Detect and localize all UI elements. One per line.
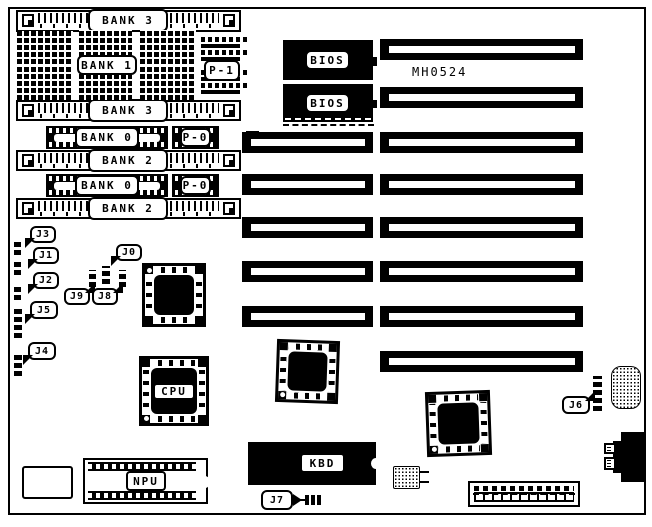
- dram-chip-block: [17, 31, 73, 64]
- jumper-j7-pins: [305, 495, 321, 505]
- expansion-slot-short-1: [242, 132, 373, 153]
- dram-chip-block: [140, 30, 196, 64]
- pin-strip: [88, 491, 196, 500]
- pin-corner: [145, 316, 153, 324]
- chip-row: [201, 44, 240, 48]
- crystal-oscillator: [393, 466, 420, 489]
- pin-strip: [88, 462, 196, 471]
- bank3-label: BANK 3: [88, 99, 168, 122]
- pin-ticks: [151, 416, 197, 422]
- cpu-label: CPU: [153, 383, 195, 400]
- plcc-chip-3: [425, 390, 492, 457]
- socket-slot: [136, 182, 160, 190]
- expansion-slot-long-8: [380, 351, 583, 372]
- simm-latch-icon: [223, 154, 235, 167]
- plcc-chip-2: [275, 339, 340, 404]
- keyboard-din-connector: [621, 472, 645, 482]
- slot-opening: [389, 313, 575, 320]
- slot-opening: [251, 313, 365, 320]
- power-pins-bottom: [474, 492, 574, 502]
- slot-opening: [389, 94, 575, 101]
- power-connector: [468, 481, 580, 507]
- pin-ticks: [429, 404, 436, 445]
- kbd-label: KBD: [300, 453, 345, 473]
- slot-opening: [389, 358, 575, 365]
- connector-texture: [607, 446, 611, 451]
- bios-label: BIOS: [305, 93, 350, 113]
- din-pin-connector: [604, 443, 616, 454]
- expansion-slot-short-2: [242, 174, 373, 195]
- motherboard-diagram: BANK 3 BANK 3 BANK 2 BANK 2: [0, 0, 652, 527]
- slot-opening: [251, 268, 365, 275]
- jumper-j0-label: J0: [116, 244, 142, 261]
- bios-label: BIOS: [305, 50, 350, 70]
- pin1-dot-icon: [143, 415, 150, 422]
- jumper-j2-label: J2: [33, 272, 59, 289]
- pin-ticks: [289, 343, 328, 350]
- bank1-label: BANK 1: [77, 55, 137, 75]
- jumper-j5-pins: [14, 307, 22, 338]
- bank0-label: BANK 0: [75, 175, 139, 196]
- bios-chip-tab: [372, 57, 377, 66]
- socket-notch: [200, 476, 210, 488]
- bank0-label: BANK 0: [75, 127, 139, 148]
- jumper-j1-pins: [14, 261, 21, 275]
- jumper-j9-label: J9: [64, 288, 90, 305]
- pin-ticks: [154, 317, 194, 323]
- pin-ticks: [154, 267, 194, 273]
- chip-die: [287, 351, 327, 391]
- expansion-slot-long-3: [380, 132, 583, 153]
- pin-ticks: [151, 360, 197, 366]
- expansion-slot-long-5: [380, 217, 583, 238]
- jumper-j4-pins: [14, 353, 22, 376]
- slot-opening: [251, 224, 365, 231]
- jumper-j8-label: J8: [92, 288, 118, 305]
- expansion-slot-long-7: [380, 306, 583, 327]
- pin-corner: [142, 359, 150, 367]
- jumper-j3-label: J3: [30, 226, 56, 243]
- simm-latch-icon: [22, 202, 34, 215]
- pin-corner: [195, 316, 203, 324]
- dram-chip-block: [140, 66, 196, 100]
- connector-texture: [607, 460, 611, 467]
- chip-die: [154, 275, 194, 315]
- pin-corner: [280, 342, 288, 350]
- expansion-slot-short-4: [242, 261, 373, 282]
- pin-ticks: [279, 351, 286, 390]
- expansion-slot-short-5: [242, 306, 373, 327]
- expansion-slot-long-2: [380, 87, 583, 108]
- simm-latch-icon: [22, 154, 34, 167]
- battery: [611, 366, 641, 409]
- crystal-lead: [420, 471, 429, 473]
- pin-ticks: [328, 353, 335, 392]
- chip-row: [201, 83, 247, 88]
- jumper-j5-label: J5: [30, 301, 58, 319]
- bios-socket-dashed-line: [283, 124, 374, 126]
- chip-row: [201, 37, 247, 42]
- chip-row: [201, 50, 247, 55]
- plcc-chip-1: [142, 263, 206, 327]
- slot-opening: [389, 224, 575, 231]
- expansion-slot-long-4: [380, 174, 583, 195]
- pin1-dot-icon: [146, 267, 153, 274]
- expansion-slot-short-3: [242, 217, 373, 238]
- bios-chip-tab: [372, 100, 377, 108]
- jumper-j3-pins: [14, 241, 21, 255]
- pin-ticks: [143, 368, 149, 414]
- pin-ticks: [196, 275, 202, 315]
- slot-opening: [389, 139, 575, 146]
- component-outline: [22, 466, 73, 499]
- p1-label: P-1: [204, 60, 240, 81]
- jumper-j0-pins: [102, 266, 110, 284]
- p0-label: P-0: [180, 176, 211, 195]
- bank3-label: BANK 3: [88, 9, 168, 32]
- jumper-j4-label: J4: [28, 342, 56, 360]
- pin-corner: [198, 359, 206, 367]
- simm-latch-icon: [223, 104, 235, 117]
- pin-corner: [428, 395, 436, 403]
- pin-corner: [481, 444, 489, 452]
- jumper-j6-label: J6: [562, 396, 590, 414]
- chip-die: [437, 402, 479, 444]
- simm-latch-icon: [22, 104, 34, 117]
- simm-latch-icon: [223, 14, 235, 27]
- slot-opening: [251, 139, 365, 146]
- dram-chip-block: [17, 67, 73, 100]
- slot-opening: [389, 46, 575, 53]
- pin-ticks: [480, 402, 487, 443]
- pin-corner: [198, 415, 206, 423]
- pin-ticks: [437, 394, 478, 401]
- slot-opening: [389, 181, 575, 188]
- keyboard-din-connector-body: [613, 441, 645, 473]
- pin-ticks: [199, 368, 205, 414]
- part-number-text: MH0524: [412, 65, 467, 79]
- jumper-j7-label: J7: [261, 490, 293, 510]
- pin-ticks: [287, 392, 326, 399]
- pin-ticks: [146, 275, 152, 315]
- pin-ticks: [439, 445, 480, 452]
- simm-latch-icon: [22, 14, 34, 27]
- simm-latch-icon: [223, 202, 235, 215]
- chip-row: [201, 90, 240, 94]
- bank2-label: BANK 2: [88, 149, 168, 172]
- p0-label: P-0: [180, 128, 211, 147]
- socket-outline-dashed: [285, 118, 371, 120]
- socket-slot: [136, 134, 160, 142]
- slot-opening: [251, 181, 365, 188]
- slot-opening: [389, 268, 575, 275]
- din-pin-connector: [604, 457, 616, 470]
- pin-corner: [479, 393, 487, 401]
- expansion-slot-long-1: [380, 39, 583, 60]
- chip-notch: [371, 458, 381, 469]
- jumper-j2-pins: [14, 286, 21, 300]
- power-pins-top: [474, 486, 574, 491]
- pin-corner: [195, 266, 203, 274]
- pin-corner: [327, 393, 335, 401]
- npu-label: NPU: [126, 471, 166, 491]
- crystal-lead: [420, 481, 429, 483]
- bank2-label: BANK 2: [88, 197, 168, 220]
- jumper-j1-label: J1: [33, 247, 59, 264]
- pin-corner: [329, 344, 337, 352]
- expansion-slot-long-6: [380, 261, 583, 282]
